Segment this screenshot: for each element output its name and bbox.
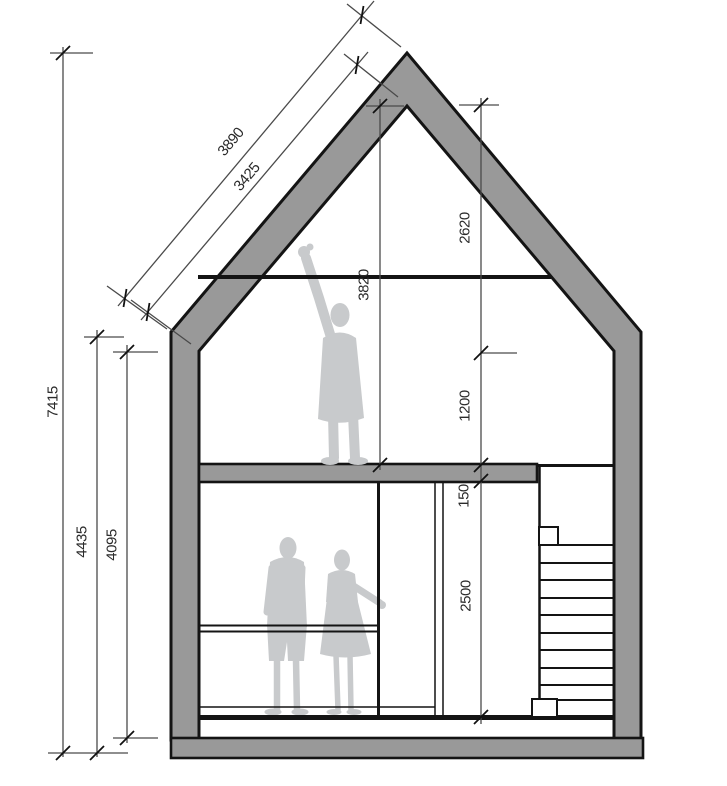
figure-foot-right (292, 709, 309, 716)
figure-head (331, 303, 350, 327)
ground-slab (171, 738, 643, 758)
architectural-section-drawing: 7415 4435 4095 3890 (0, 0, 727, 786)
stair-bottom-newel (532, 699, 557, 717)
figure-head (334, 550, 350, 571)
figure-foot-left (265, 709, 282, 716)
roof-and-walls (171, 53, 641, 740)
stair-top-newel (539, 527, 558, 545)
figure-head (280, 537, 297, 559)
dim-label-roof-slope-outer: 3890 (214, 124, 247, 159)
dim-label-overall-height: 7415 (45, 386, 62, 418)
figure-leg-left (336, 655, 338, 710)
dim-label-kneewall-to-floor: 1200 (457, 390, 474, 422)
upper-floor-slab (199, 464, 537, 482)
staircase (532, 464, 614, 717)
figure-arm-right (300, 568, 302, 614)
figure-thumb (307, 244, 314, 251)
dim-label-ridge-to-kneewall: 2620 (457, 212, 474, 244)
figure-arm-left (267, 568, 272, 612)
interior-elements (198, 275, 614, 720)
figure-torso (318, 333, 364, 423)
dim-label-wall-height-inner: 4095 (104, 529, 121, 561)
figure-leg-right (353, 414, 355, 458)
figure-shorts (267, 624, 307, 661)
attic-beam-line (198, 275, 551, 279)
dim-label-wall-height-outer: 4435 (74, 526, 91, 558)
figure-foot-right (348, 457, 368, 465)
section-drawing-svg: 7415 4435 4095 3890 (0, 0, 727, 786)
figure-raised-arm (306, 258, 333, 344)
figure-leg-right (350, 655, 351, 710)
figure-foot-left (327, 709, 342, 715)
dim-label-ridge-to-upper-floor: 3820 (356, 269, 373, 301)
dim-wall-height-inner: 4095 (104, 345, 159, 745)
figure-foot-right (347, 709, 362, 715)
dim-label-roof-slope-inner: 3425 (230, 159, 263, 194)
figure-foot-left (321, 457, 339, 465)
figure-leg-left (333, 414, 334, 458)
dim-label-ground-floor-height: 2500 (458, 580, 475, 612)
figure-leg-right (296, 660, 297, 710)
dim-label-floor-slab-thickness: 150 (456, 484, 473, 508)
dim-overall-height: 7415 (45, 46, 129, 760)
